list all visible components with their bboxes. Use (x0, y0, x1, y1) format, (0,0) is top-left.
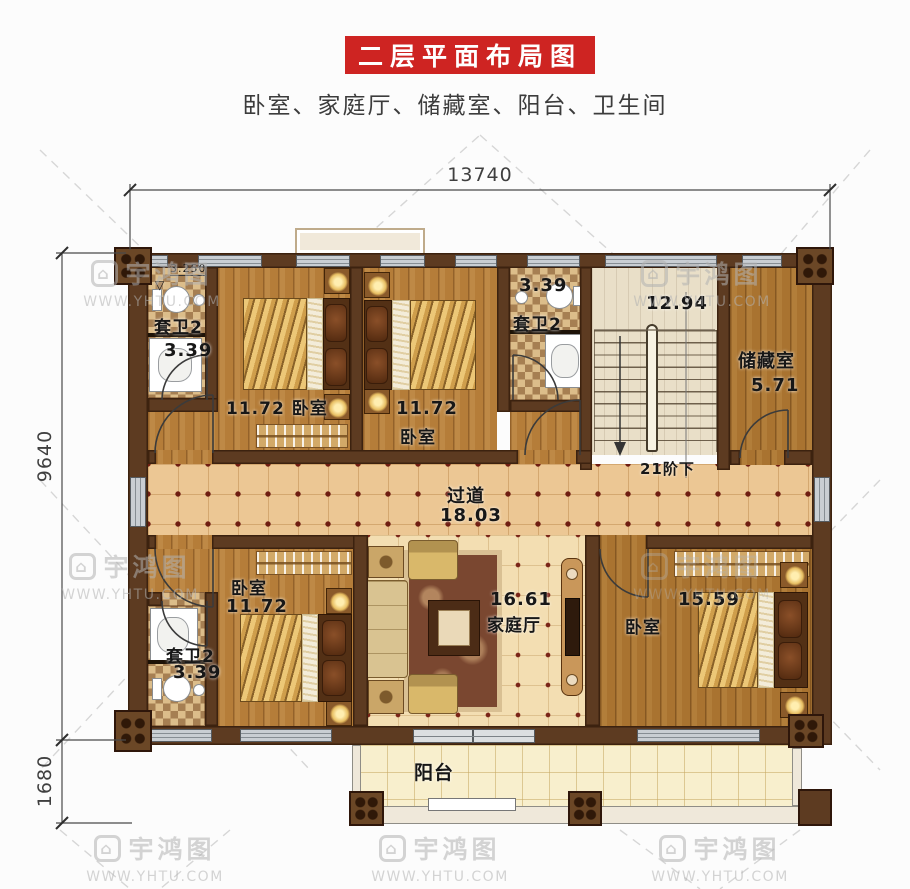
watermark-url: WWW.YHTU.COM (65, 869, 245, 885)
window (742, 255, 782, 267)
label-bath-top-left-area: 3.39 (164, 340, 212, 361)
yhtu-logo-icon: ⌂ (69, 553, 96, 580)
yhtu-logo-icon: ⌂ (659, 835, 686, 862)
watermark-brand: 宇鸿图 (693, 830, 780, 866)
nightstand (326, 700, 352, 726)
bed-fold (307, 298, 323, 390)
page-subtitle: 卧室、家庭厅、储藏室、阳台、卫生间 (0, 86, 910, 120)
watermark-url: WWW.YHTU.COM (350, 869, 530, 885)
lamp-icon (330, 704, 350, 724)
wall-interior (148, 398, 218, 412)
window (240, 729, 332, 742)
level-marker-icon: ▽ (155, 278, 165, 292)
bed-duvet (240, 614, 302, 702)
label-bedroom-bottom-left-area: 11.72 (226, 596, 288, 617)
coffee-table-top (438, 610, 470, 646)
bed-duvet (243, 298, 307, 390)
balcony-column (788, 714, 824, 748)
door-gap (156, 535, 212, 549)
wall-interior (784, 450, 812, 465)
label-corridor-area: 18.03 (440, 505, 502, 526)
window (198, 255, 262, 267)
door-gap (600, 535, 646, 549)
lamp-icon (328, 398, 348, 418)
watermark-brand: 宇鸿图 (413, 830, 500, 866)
label-bath-bottom-left-area: 3.39 (173, 662, 221, 683)
bed-fold (758, 592, 774, 688)
watermark-brand: 宇鸿图 (128, 830, 215, 866)
bedroom-bottom-left-entry (148, 549, 218, 592)
label-bath-top-left-name: 套卫2 (154, 313, 203, 338)
nightstand (364, 272, 390, 298)
page-title: 二层平面布局图 (345, 36, 595, 74)
wardrobe (256, 551, 352, 575)
balcony-step (428, 798, 516, 811)
wall-interior (148, 535, 156, 549)
door-gap (162, 592, 205, 606)
label-balcony-name: 阳台 (414, 758, 454, 785)
window (380, 255, 425, 267)
wall-interior (212, 535, 368, 549)
label-bath-top-right-area: 3.39 (519, 275, 567, 296)
stair-rail (646, 324, 658, 452)
door-gap (740, 450, 784, 465)
dim-left-balcony: 1680 (34, 746, 56, 816)
lamp-icon (330, 592, 350, 612)
wall-interior (646, 535, 812, 549)
lamp-icon (368, 276, 388, 296)
label-family-hall-area: 16.61 (490, 589, 552, 610)
bed-duvet (410, 300, 476, 390)
pillow (322, 620, 346, 656)
label-bedroom-bottom-right-name: 卧室 (625, 613, 661, 638)
window (130, 477, 146, 527)
tv (565, 598, 580, 656)
pillow (322, 660, 346, 696)
wall-interior (580, 267, 592, 470)
nightstand (326, 588, 352, 614)
toilet-icon (163, 286, 190, 313)
balcony-corner-post (798, 789, 832, 826)
room-name: 卧室 (292, 399, 328, 419)
watermark: ⌂宇鸿图 WWW.YHTU.COM (65, 830, 245, 885)
label-stairwell-area: 12.94 (646, 293, 708, 314)
armchair (408, 674, 458, 714)
lamp-icon (368, 392, 388, 412)
watermark: ⌂宇鸿图 WWW.YHTU.COM (350, 830, 530, 885)
balcony-sliding-door (413, 729, 535, 743)
toilet-tank (152, 678, 162, 700)
wall-interior (148, 592, 162, 606)
pillow (325, 304, 347, 342)
cabinet-knob (566, 674, 578, 686)
wall-interior (212, 450, 518, 464)
door-gap (156, 450, 212, 464)
corner-column (796, 247, 834, 285)
label-stairwell-steps: 21阶下 (640, 458, 695, 479)
wardrobe (256, 424, 348, 448)
bedroom-top-mid-nook (510, 412, 580, 450)
window (637, 729, 760, 742)
door-gap (518, 450, 576, 464)
label-bedroom-top-mid-area: 11.72 (396, 398, 458, 419)
wall-interior (576, 450, 592, 464)
watermark-url: WWW.YHTU.COM (630, 869, 810, 885)
corner-column (114, 710, 152, 752)
side-table (368, 680, 404, 714)
label-bath-top-right-name: 套卫2 (513, 310, 562, 335)
wall-interior (717, 267, 730, 470)
label-storage-area: 5.71 (751, 375, 799, 396)
pillow (325, 348, 347, 386)
wall-interior (730, 450, 740, 465)
sink-basin-icon (551, 344, 579, 378)
pillow (778, 600, 802, 638)
area-value: 11.72 (226, 399, 285, 419)
yhtu-logo-icon: ⌂ (379, 835, 406, 862)
sofa (364, 580, 408, 678)
lamp-icon (785, 566, 805, 586)
nightstand (780, 562, 808, 588)
wall-interior (353, 535, 368, 726)
label-bedroom-bottom-right-area: 15.59 (678, 589, 740, 610)
label-family-hall-name: 家庭厅 (487, 611, 541, 636)
bedroom-top-left-entry (148, 412, 218, 450)
dim-left-main: 9640 (34, 421, 56, 491)
dim-top-width: 13740 (420, 164, 540, 186)
window (605, 255, 717, 267)
balcony-column (349, 791, 384, 826)
lamp-icon (785, 696, 805, 716)
nightstand (324, 268, 350, 294)
armchair (408, 540, 458, 580)
paper-holder-icon (193, 294, 205, 306)
pillow (366, 306, 388, 342)
watermark: ⌂宇鸿图 WWW.YHTU.COM (630, 830, 810, 885)
canopy (295, 228, 425, 255)
floor-level-label: 3.250 (170, 262, 207, 276)
label-bedroom-top-left: 11.72 卧室 (226, 394, 328, 419)
window (148, 729, 212, 742)
floor-plan-page: 二层平面布局图 卧室、家庭厅、储藏室、阳台、卫生间 (0, 0, 910, 889)
yhtu-logo-icon: ⌂ (94, 835, 121, 862)
wall-interior (350, 267, 363, 464)
label-bedroom-top-mid-name: 卧室 (400, 423, 436, 448)
window (527, 255, 580, 267)
bed-fold (392, 300, 410, 390)
corner-column (114, 247, 152, 285)
paper-holder-icon (193, 684, 205, 696)
balcony-column (568, 791, 602, 826)
pillow (778, 642, 802, 680)
window (455, 255, 497, 267)
wall-interior (497, 267, 510, 412)
lamp-icon (328, 272, 348, 292)
bed-fold (302, 614, 318, 702)
side-table (368, 546, 404, 578)
nightstand (364, 388, 390, 414)
window (814, 477, 830, 522)
label-storage-name: 储藏室 (738, 347, 795, 373)
wall-interior (148, 450, 156, 464)
window (296, 255, 350, 267)
pillow (366, 348, 388, 384)
toilet-tank (152, 289, 162, 311)
wall-interior (585, 535, 600, 726)
cabinet-knob (566, 568, 578, 580)
